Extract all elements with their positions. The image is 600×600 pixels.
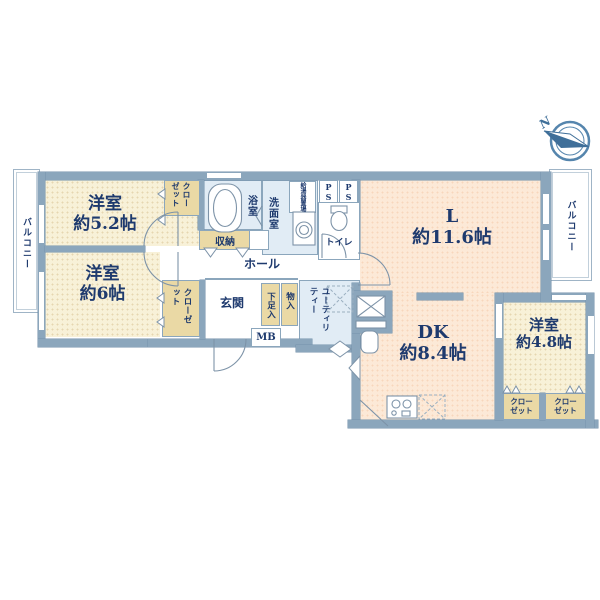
window-living-east-2 xyxy=(543,230,549,260)
floorplan-page: { "compass": { "north_label": "N" }, "la… xyxy=(0,0,600,600)
utility-label: ユーティリティー xyxy=(302,287,336,335)
floor-plan: N バルコニー バルコニー 洋室約5.2帖 洋室約6帖 L約11.6帖 DK約8… xyxy=(0,0,600,600)
wall-genkan-closet xyxy=(200,280,205,339)
dk-label: DK約8.4帖 xyxy=(383,320,483,368)
wall-ldk-stub xyxy=(417,293,463,300)
closet-48-left-label: クローゼット xyxy=(504,394,539,419)
room-6-label: 洋室約6帖 xyxy=(45,262,160,308)
window-living-east-1 xyxy=(543,194,549,224)
water-heater-label: 給湯器置場 xyxy=(290,182,315,212)
room-5-2-label: 洋室約5.2帖 xyxy=(45,192,165,238)
window-room48-top xyxy=(552,295,586,300)
toilet-room xyxy=(318,202,360,260)
pipe-space-1-label: PS xyxy=(320,181,337,202)
wall-room-divider xyxy=(45,246,145,252)
hall-label: ホール xyxy=(232,256,292,271)
balcony-left-label: バルコニー xyxy=(14,198,39,288)
washroom-label: 洗面室 xyxy=(264,184,280,242)
wall-top xyxy=(38,172,551,180)
wall-utility-bottom xyxy=(296,345,360,352)
window-room52-balcony xyxy=(39,205,44,243)
meter-box-label: MB xyxy=(251,329,281,346)
living-label: L約11.6帖 xyxy=(382,202,522,254)
closet-48-right-label: クローゼット xyxy=(546,394,585,419)
bath-label: 浴室 xyxy=(242,186,260,226)
window-room48-east xyxy=(588,316,594,354)
pipe-space-2-label: PS xyxy=(340,181,357,202)
compass-north-label: N xyxy=(536,113,555,132)
storage-small-label: 物入 xyxy=(282,287,297,315)
shoe-cabinet-label: 下足入 xyxy=(262,286,279,324)
compass-icon: N xyxy=(536,113,589,160)
wall-entrance-bottom xyxy=(148,339,312,347)
window-bath-top xyxy=(207,173,241,178)
entrance-label: 玄関 xyxy=(206,294,258,310)
wall-dk-bottom xyxy=(348,420,598,428)
storage-label: 収納 xyxy=(199,231,251,249)
window-room6-balcony xyxy=(39,272,44,330)
closet-52-label: クローゼット xyxy=(165,182,199,214)
balcony-right-label: バルコニー xyxy=(552,183,590,269)
toilet-label: トイレ xyxy=(320,234,358,248)
room-4-8-label: 洋室約4.8帖 xyxy=(500,312,588,356)
closet-6-label: クローゼット xyxy=(163,288,199,330)
entrance-step-line xyxy=(205,278,298,280)
